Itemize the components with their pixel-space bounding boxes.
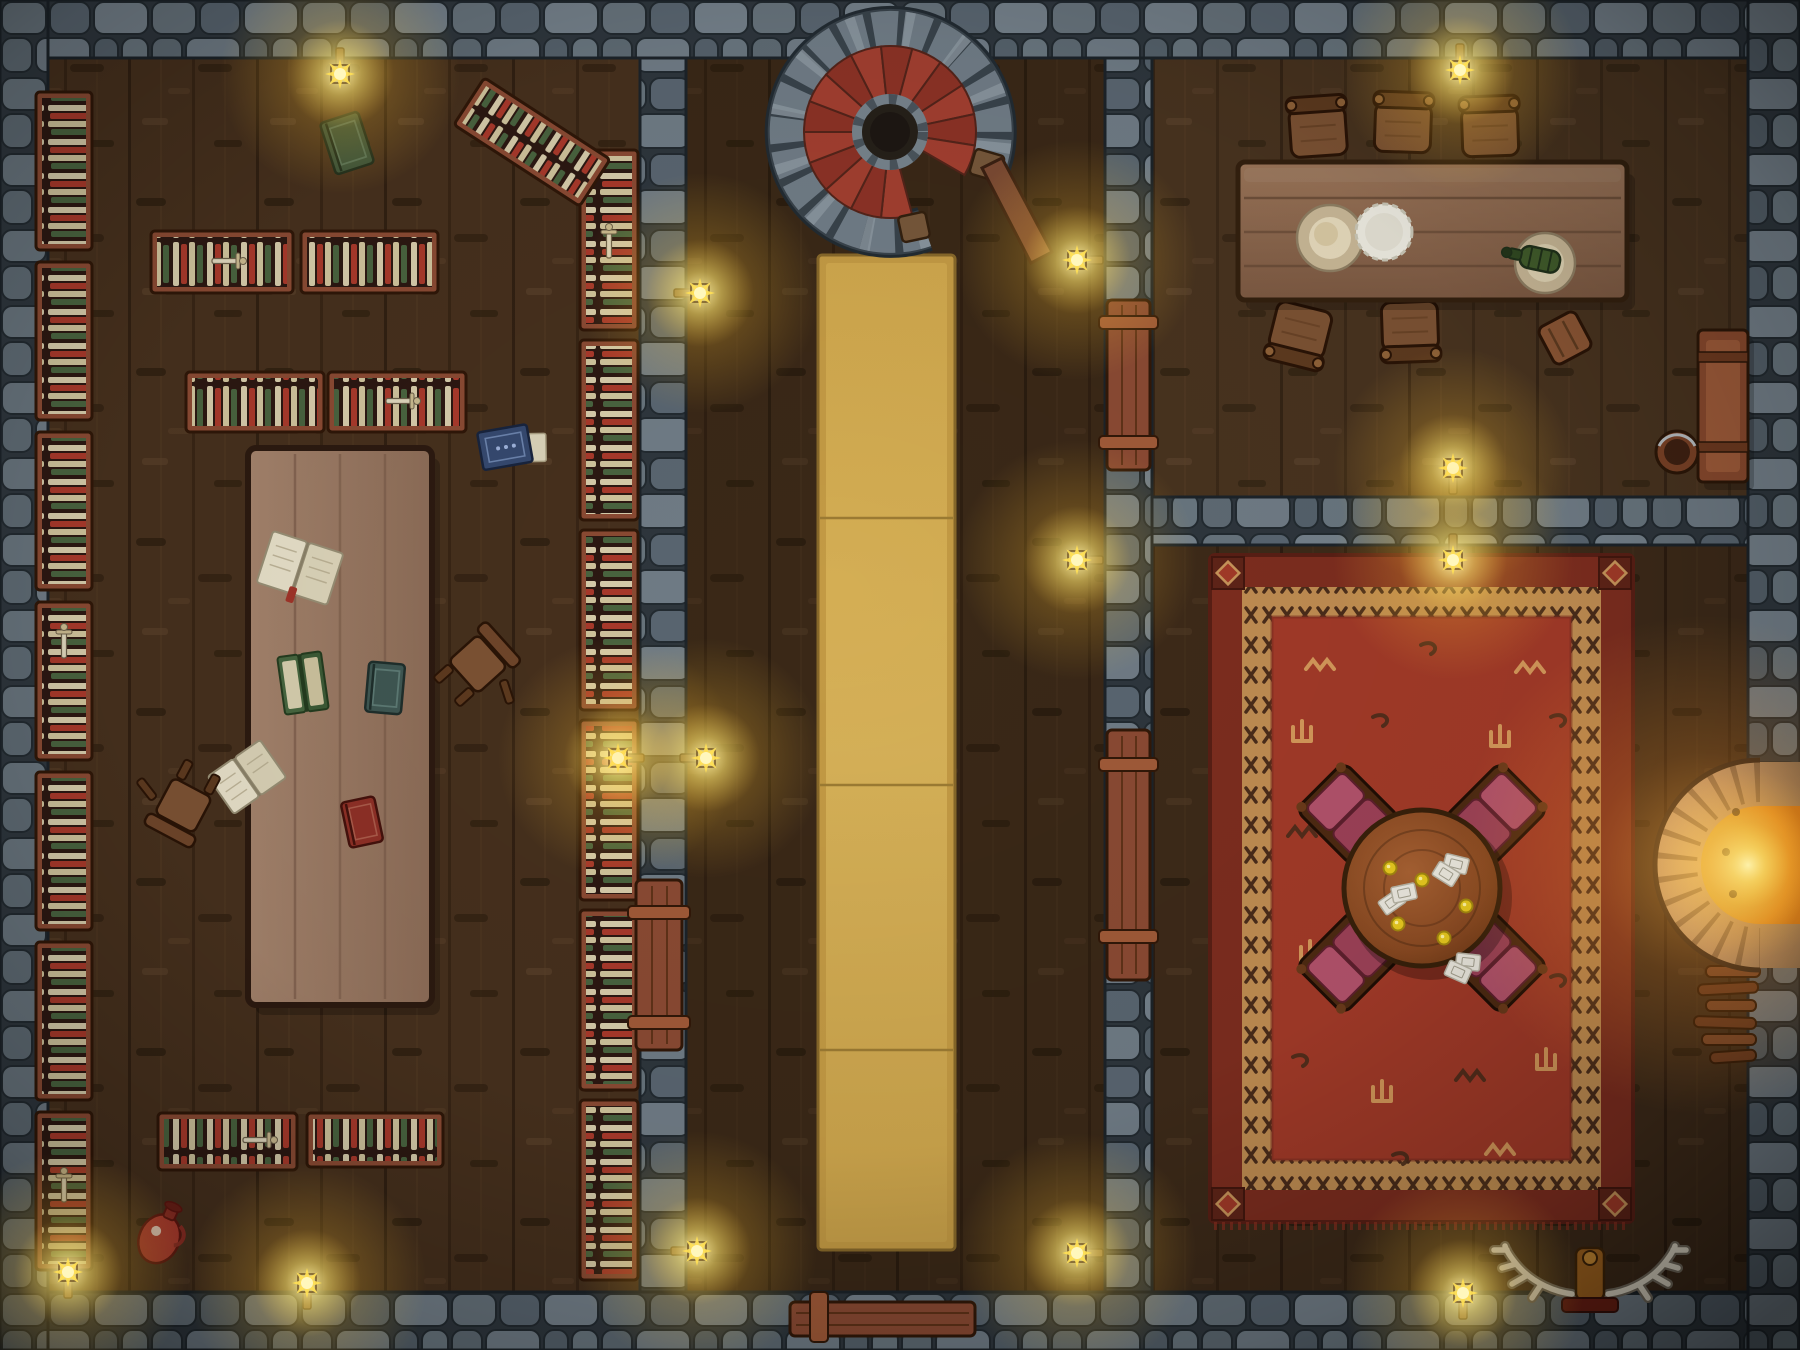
lantern [580,173,820,413]
flame-core [1457,1287,1469,1299]
flame-core [1447,554,1459,566]
flame-core [694,287,706,299]
lantern [957,440,1197,680]
flame-core [691,1245,703,1257]
flame-core [1071,254,1083,266]
flame-core [334,68,346,80]
flame-core [301,1277,313,1289]
lantern [957,140,1197,380]
flame-core [1071,1247,1083,1259]
flame-core [700,752,712,764]
map-canvas [0,0,1800,1350]
flame-core [1454,64,1466,76]
flame-core [62,1266,74,1278]
battle-map [0,0,1800,1350]
flame-core [1071,554,1083,566]
vignette-shading [0,0,1800,1350]
lantern [1333,440,1573,680]
lantern [586,638,826,878]
